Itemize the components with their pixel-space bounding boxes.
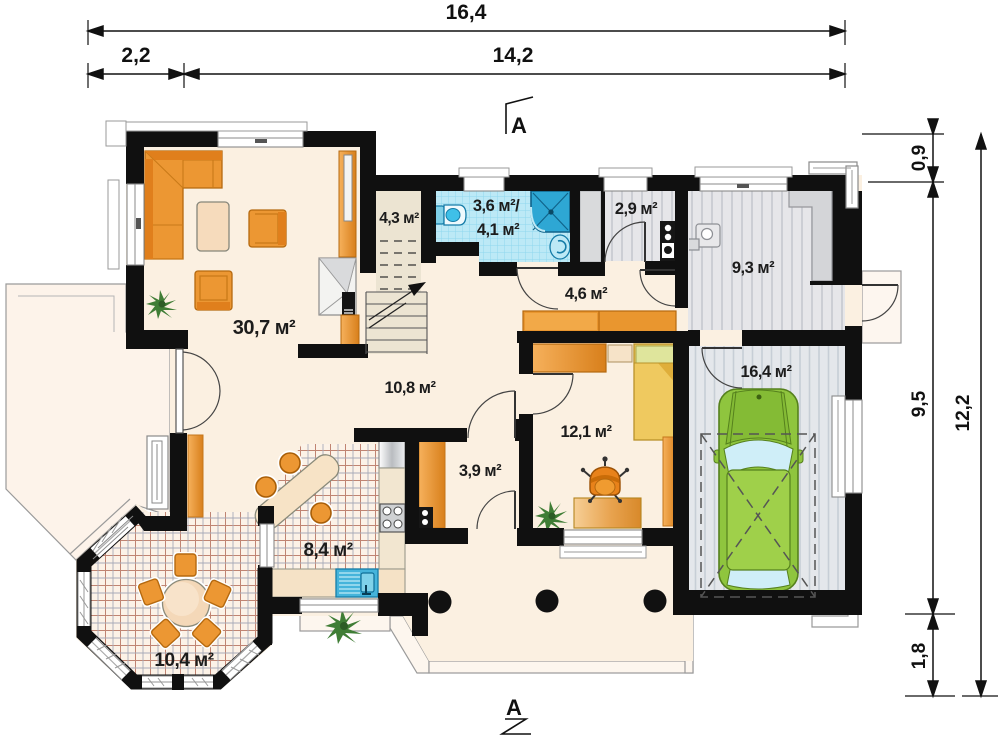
svg-text:3,9 м²: 3,9 м² (459, 462, 502, 480)
svg-text:9,5: 9,5 (909, 390, 930, 417)
svg-text:0,9: 0,9 (909, 145, 930, 171)
svg-text:9,3 м²: 9,3 м² (732, 259, 775, 277)
svg-text:10,8 м²: 10,8 м² (385, 379, 437, 397)
svg-text:2,2: 2,2 (121, 44, 150, 67)
svg-text:16,4: 16,4 (446, 1, 487, 24)
svg-text:4,1 м²: 4,1 м² (477, 221, 520, 239)
svg-text:1,8: 1,8 (909, 643, 930, 669)
svg-text:16,4 м²: 16,4 м² (741, 363, 793, 381)
svg-text:12,1 м²: 12,1 м² (561, 423, 613, 441)
svg-text:12,2: 12,2 (953, 395, 974, 432)
svg-text:14,2: 14,2 (493, 44, 534, 67)
svg-text:4,6 м²: 4,6 м² (565, 285, 608, 303)
svg-text:A: A (511, 113, 527, 138)
svg-text:30,7 м²: 30,7 м² (233, 317, 296, 339)
svg-text:10,4 м²: 10,4 м² (154, 650, 213, 671)
svg-text:3,6 м²/: 3,6 м²/ (473, 197, 520, 215)
svg-text:2,9 м²: 2,9 м² (615, 200, 658, 218)
svg-text:4,3 м²: 4,3 м² (379, 210, 419, 227)
svg-text:8,4 м²: 8,4 м² (303, 540, 352, 561)
svg-text:A: A (506, 695, 522, 720)
